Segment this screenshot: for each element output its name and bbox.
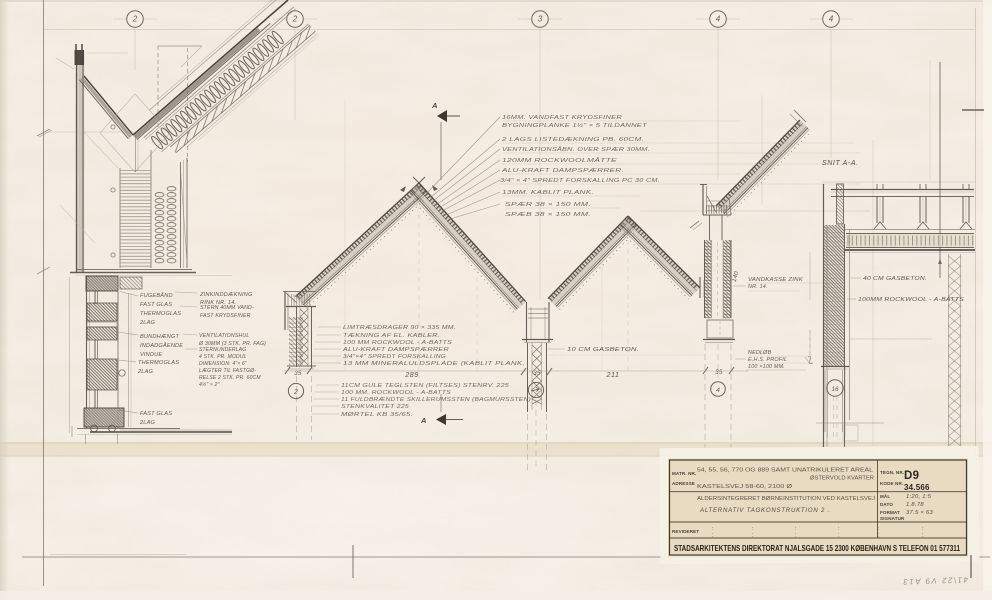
- svg-text::: :: [878, 533, 880, 539]
- svg-text:A: A: [420, 416, 426, 425]
- svg-text:E.H.S. PROFIL: E.H.S. PROFIL: [748, 357, 787, 363]
- svg-text:RELSE 2 STK. PR. 60CM: RELSE 2 STK. PR. 60CM: [199, 375, 261, 381]
- svg-text::: :: [878, 526, 880, 532]
- svg-text:16MM. VANDFAST KRYDSFINER: 16MM. VANDFAST KRYDSFINER: [502, 115, 622, 121]
- svg-text::: :: [712, 533, 714, 539]
- svg-text:1:20, 1:5: 1:20, 1:5: [906, 494, 932, 500]
- svg-text:37.5 × 63: 37.5 × 63: [906, 510, 934, 516]
- svg-text:1.8.78: 1.8.78: [906, 502, 924, 508]
- svg-text:ALU-KRAFT DAMPSPÆRRER: ALU-KRAFT DAMPSPÆRRER: [342, 347, 449, 353]
- svg-text:LIMTRÆSDRAGER 90 × 335 MM.: LIMTRÆSDRAGER 90 × 335 MM.: [343, 325, 456, 331]
- svg-text:120MM ROCKWOOLMÅTTE: 120MM ROCKWOOLMÅTTE: [502, 157, 617, 164]
- svg-text:STENKVALITET 225: STENKVALITET 225: [341, 404, 410, 410]
- svg-text:BYGNINGPLANKE 1½" × 5 TILDANNE: BYGNINGPLANKE 1½" × 5 TILDANNET: [502, 122, 647, 129]
- svg-text:100MM ROCKWOOL - A-BATTS: 100MM ROCKWOOL - A-BATTS: [858, 297, 964, 303]
- svg-text:SPÆB 38 × 150 MM.: SPÆB 38 × 150 MM.: [505, 212, 591, 218]
- svg-text:211: 211: [606, 370, 620, 379]
- svg-text:MATR. NR.: MATR. NR.: [672, 471, 696, 476]
- svg-text:MØRTEL KB 35/65.: MØRTEL KB 35/65.: [341, 412, 413, 418]
- svg-text:2LAG: 2LAG: [139, 320, 156, 326]
- svg-text:2: 2: [292, 15, 298, 24]
- svg-text:MÅL: MÅL: [880, 493, 890, 499]
- svg-text::: :: [922, 533, 924, 539]
- svg-text:FAST KRYDSFINER: FAST KRYDSFINER: [200, 313, 251, 319]
- svg-text:2: 2: [293, 389, 298, 396]
- svg-text:289: 289: [404, 370, 419, 379]
- svg-text::: :: [752, 533, 754, 539]
- svg-text:VENTILATIONSÅBN. OVER SPÆR 30M: VENTILATIONSÅBN. OVER SPÆR 30MM.: [502, 146, 650, 153]
- svg-text:THERMOGLAS: THERMOGLAS: [138, 360, 179, 366]
- svg-text:LÆGTER TIL FASTGØ-: LÆGTER TIL FASTGØ-: [199, 368, 256, 374]
- svg-text:FAST GLAS: FAST GLAS: [140, 302, 172, 308]
- svg-text:VENTILATIONSHUL: VENTILATIONSHUL: [199, 333, 249, 339]
- svg-text:3: 3: [538, 15, 543, 24]
- svg-text:11CM GULE TEGLSTEN (FILTSES): 11CM GULE TEGLSTEN (FILTSES) STENRV. 225: [341, 383, 510, 389]
- svg-text:2LAG: 2LAG: [139, 420, 156, 426]
- svg-text:STERNUNDERLAG: STERNUNDERLAG: [199, 347, 246, 353]
- svg-text:4: 4: [716, 15, 721, 24]
- svg-text:ALDERSINTEGRERET BØRNEINSTITUT: ALDERSINTEGRERET BØRNEINSTITUTION VED KA…: [697, 496, 875, 502]
- svg-text::: :: [838, 533, 840, 539]
- svg-text:100 ×100 MM.: 100 ×100 MM.: [748, 364, 785, 370]
- svg-text:13 MM MINERALULDSPLADE (KABLIT: 13 MM MINERALULDSPLADE (KABLIT PLANK,: [343, 361, 525, 367]
- svg-text:4: 4: [716, 387, 720, 394]
- svg-text::: :: [795, 526, 797, 532]
- svg-text:VANDKASSE ZINK: VANDKASSE ZINK: [748, 277, 803, 283]
- svg-text:SIGNATUR: SIGNATUR: [880, 516, 905, 521]
- svg-text:54, 55, 56, 770 OG 889 SAMT U: 54, 55, 56, 770 OG 889 SAMT UNATRIKULERE…: [697, 468, 873, 474]
- svg-text::: :: [712, 526, 714, 532]
- svg-text:KASTELSVEJ 58-60, 2100 Ø: KASTELSVEJ 58-60, 2100 Ø: [697, 484, 793, 490]
- svg-text:ZINKINDDÆKNING: ZINKINDDÆKNING: [199, 292, 253, 298]
- svg-text:D9: D9: [904, 470, 919, 482]
- svg-text:34.566: 34.566: [904, 483, 930, 492]
- svg-text:4 STK. PR. MODUL: 4 STK. PR. MODUL: [199, 354, 247, 360]
- svg-text:4½" × 2": 4½" × 2": [199, 381, 220, 388]
- svg-text:16: 16: [831, 386, 839, 393]
- svg-text::: :: [752, 526, 754, 532]
- svg-text:13MM. KABLIT PLANK.: 13MM. KABLIT PLANK.: [502, 190, 594, 196]
- svg-text:KODE NR.: KODE NR.: [880, 481, 903, 486]
- svg-text:ØSTERVOLD KVARTER: ØSTERVOLD KVARTER: [810, 476, 874, 482]
- svg-text:REVIDERET: REVIDERET: [672, 529, 699, 534]
- svg-text:TÆKNING AF EL. KABLER.: TÆKNING AF EL. KABLER.: [343, 333, 440, 339]
- svg-text::: :: [795, 533, 797, 539]
- svg-text:TEGN. NR.: TEGN. NR.: [880, 470, 904, 475]
- svg-text:2 LAGS LISTEDÆKNING PB. 60CM.: 2 LAGS LISTEDÆKNING PB. 60CM.: [501, 137, 644, 143]
- svg-text::: :: [922, 526, 924, 532]
- svg-text:SPÆR 38 × 150 MM.: SPÆR 38 × 150 MM.: [505, 202, 591, 208]
- svg-text:BUNDHÆNGT: BUNDHÆNGT: [140, 334, 179, 340]
- svg-text:ADRESSE: ADRESSE: [672, 481, 695, 486]
- svg-text:2LAG: 2LAG: [137, 369, 154, 375]
- svg-text:VINDUE: VINDUE: [140, 352, 162, 358]
- svg-text:NR. 14.: NR. 14.: [748, 284, 768, 290]
- svg-text:THERMOGLAS: THERMOGLAS: [140, 311, 181, 317]
- svg-text:40 CM GASBETON.: 40 CM GASBETON.: [863, 276, 927, 282]
- svg-text:3/4" × 4" SPREDT FORSKALLING: 3/4" × 4" SPREDT FORSKALLING PC 30 CM.: [500, 178, 660, 184]
- svg-text:DATO: DATO: [880, 502, 893, 507]
- svg-text:NEDLØB: NEDLØB: [748, 350, 772, 356]
- svg-text:SNIT A-A.: SNIT A-A.: [822, 160, 859, 167]
- svg-text:4: 4: [829, 15, 834, 24]
- svg-text:100 MM ROCKWOOL - A-BATTS: 100 MM ROCKWOOL - A-BATTS: [343, 340, 452, 346]
- svg-text:FAST GLAS: FAST GLAS: [140, 411, 172, 417]
- svg-text:ALTERNATIV TAGKONSTRUKTION 2: ALTERNATIV TAGKONSTRUKTION 2 .: [699, 507, 830, 514]
- svg-text::: :: [838, 526, 840, 532]
- svg-text:11 FULDBRÆNDTE SKILLERUMSSTEN: 11 FULDBRÆNDTE SKILLERUMSSTEN (BAGMURSST…: [341, 397, 531, 403]
- svg-text:2: 2: [132, 15, 138, 24]
- svg-text:FORMAT: FORMAT: [880, 510, 900, 515]
- svg-text:100 MM. ROCKWOOL - A-BATTS: 100 MM. ROCKWOOL - A-BATTS: [341, 390, 451, 396]
- svg-text:35: 35: [715, 369, 723, 376]
- svg-text:INDADGÅENDE: INDADGÅENDE: [140, 342, 183, 349]
- svg-text:A: A: [431, 101, 437, 110]
- svg-text:STERN 40MM VAND-: STERN 40MM VAND-: [200, 305, 254, 311]
- svg-text:ALU-KRAFT DAMPSPÆRRER.: ALU-KRAFT DAMPSPÆRRER.: [501, 168, 624, 174]
- svg-text:3/4"×4" SPREDT FORSKALLING: 3/4"×4" SPREDT FORSKALLING: [343, 354, 446, 360]
- svg-text:10 CM GASBETON.: 10 CM GASBETON.: [567, 347, 639, 353]
- svg-text:DIMENSION: 4"× 6": DIMENSION: 4"× 6": [199, 361, 247, 367]
- svg-text:FUGEBÅND: FUGEBÅND: [140, 292, 173, 299]
- svg-text:STADSARKITEKTENS DIREKTORAT: STADSARKITEKTENS DIREKTORAT NJALSGADE 15…: [674, 544, 960, 553]
